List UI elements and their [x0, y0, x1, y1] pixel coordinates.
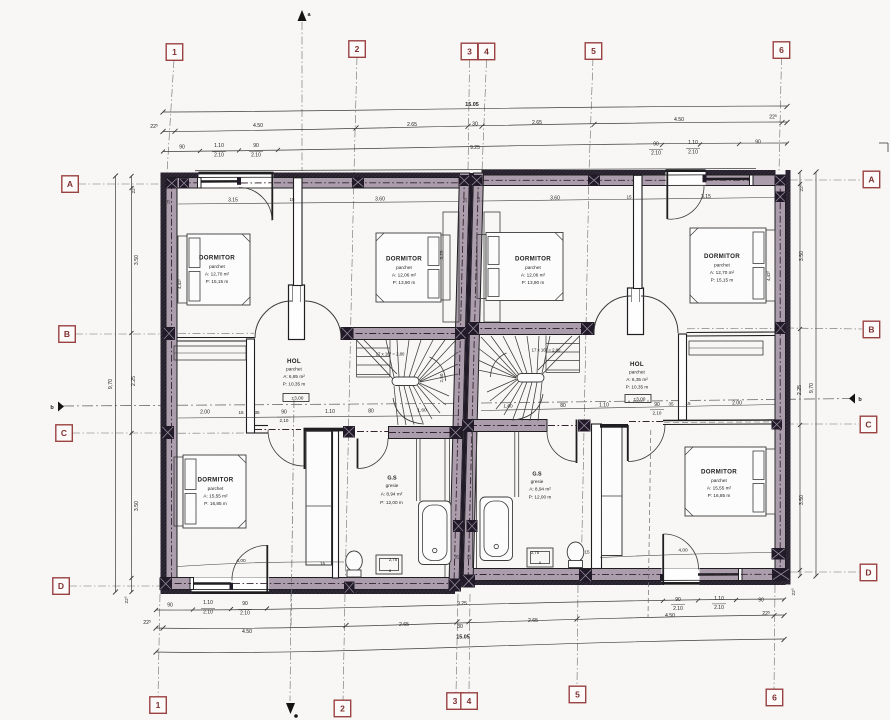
svg-text:25: 25 — [476, 197, 481, 202]
svg-text:8: 8 — [389, 569, 391, 573]
svg-text:A: 6,35 m²: A: 6,35 m² — [626, 377, 648, 382]
svg-text:3,25: 3,25 — [439, 250, 444, 259]
svg-text:4,00: 4,00 — [236, 558, 246, 564]
svg-text:35: 35 — [668, 402, 674, 407]
svg-text:parchet: parchet — [711, 478, 727, 483]
svg-text:4,00: 4,00 — [678, 548, 688, 554]
svg-text:A: 12,70 m²: A: 12,70 m² — [205, 271, 230, 276]
svg-text:6: 6 — [779, 45, 784, 55]
svg-text:DORMITOR: DORMITOR — [515, 256, 551, 263]
svg-text:C: C — [865, 420, 871, 430]
svg-text:3: 3 — [467, 47, 472, 57]
svg-text:15: 15 — [685, 401, 691, 406]
svg-text:90: 90 — [675, 597, 681, 603]
svg-text:parchet: parchet — [286, 367, 302, 372]
svg-text:2.10: 2.10 — [688, 150, 698, 156]
svg-text:gresie: gresie — [531, 479, 544, 484]
svg-text:25: 25 — [455, 554, 460, 559]
svg-text:80: 80 — [560, 403, 566, 409]
svg-text:2,10: 2,10 — [280, 418, 289, 423]
svg-text:2.25: 2.25 — [797, 385, 803, 395]
svg-text:2,75: 2,75 — [389, 557, 398, 562]
svg-text:P: 16,85 m: P: 16,85 m — [708, 493, 731, 498]
svg-text:2.10: 2.10 — [240, 611, 250, 617]
svg-text:parchet: parchet — [714, 262, 730, 267]
svg-text:17 x 165 = 2,80: 17 x 165 = 2,80 — [376, 351, 405, 356]
svg-text:15.05: 15.05 — [465, 102, 479, 108]
svg-text:4.50: 4.50 — [253, 123, 263, 129]
svg-text:2.65: 2.65 — [532, 120, 542, 126]
svg-text:4: 4 — [467, 696, 472, 706]
svg-text:DORMITOR: DORMITOR — [199, 255, 235, 262]
svg-text:P: 10,35 m: P: 10,35 m — [626, 385, 649, 390]
svg-text:1.10: 1.10 — [714, 596, 724, 602]
svg-text:4.50: 4.50 — [665, 613, 675, 619]
svg-text:1.10: 1.10 — [203, 600, 213, 606]
svg-text:C: C — [61, 428, 67, 438]
svg-text:2.10: 2.10 — [714, 605, 724, 611]
svg-text:G.S: G.S — [532, 472, 542, 478]
svg-text:A: 8,94 m²: A: 8,94 m² — [529, 487, 551, 492]
svg-text:2,10: 2,10 — [653, 411, 662, 416]
svg-text:9.25: 9.25 — [457, 601, 467, 607]
svg-text:3.60: 3.60 — [375, 197, 385, 203]
svg-text:P: 13,90 m: P: 13,90 m — [522, 280, 545, 285]
svg-text:90: 90 — [653, 142, 659, 148]
svg-text:15: 15 — [626, 195, 632, 200]
svg-text:HOL: HOL — [630, 361, 644, 368]
svg-text:parchet: parchet — [396, 265, 412, 270]
svg-text:2.25: 2.25 — [131, 376, 137, 386]
svg-text:3.60: 3.60 — [550, 196, 560, 202]
svg-text:P: 15,15 m: P: 15,15 m — [206, 279, 229, 284]
svg-text:3.50: 3.50 — [134, 501, 140, 511]
svg-text:D: D — [865, 568, 871, 578]
svg-text:1: 1 — [156, 700, 161, 710]
svg-text:30: 30 — [457, 624, 463, 630]
svg-text:90: 90 — [179, 145, 185, 151]
svg-text:17 x 165 = 2,80: 17 x 165 = 2,80 — [532, 347, 561, 352]
svg-text:2.10: 2.10 — [651, 151, 661, 157]
svg-text:P: 13,90 m: P: 13,90 m — [393, 280, 416, 285]
svg-text:HOL: HOL — [287, 358, 301, 365]
svg-text:15: 15 — [238, 410, 244, 415]
svg-text:15: 15 — [584, 550, 590, 555]
svg-text:90: 90 — [755, 140, 761, 146]
svg-text:B: B — [868, 325, 874, 335]
svg-text:2.10: 2.10 — [203, 610, 213, 616]
svg-text:2.10: 2.10 — [251, 153, 261, 159]
svg-text:gresie: gresie — [386, 483, 399, 488]
svg-text:3.50: 3.50 — [799, 495, 805, 505]
svg-text:G.S: G.S — [387, 476, 397, 482]
svg-text:P: 16,85 m: P: 16,85 m — [204, 501, 227, 506]
svg-text:A: A — [67, 179, 73, 189]
svg-text:parchet: parchet — [629, 370, 645, 375]
svg-text:P: 12,00 m: P: 12,00 m — [380, 500, 403, 505]
svg-text:A: A — [868, 175, 874, 185]
svg-text:parchet: parchet — [209, 264, 225, 269]
svg-text:D: D — [58, 581, 64, 591]
svg-text:4: 4 — [484, 47, 489, 57]
svg-text:8: 8 — [539, 561, 541, 565]
svg-text:25: 25 — [463, 197, 468, 202]
svg-text:5: 5 — [575, 690, 580, 700]
svg-text:DORMITOR: DORMITOR — [198, 477, 234, 484]
svg-text:2.10: 2.10 — [214, 153, 224, 159]
svg-text:B: B — [64, 329, 70, 339]
svg-text:2,75: 2,75 — [531, 550, 540, 555]
svg-text:1,60: 1,60 — [503, 404, 513, 410]
svg-text:DORMITOR: DORMITOR — [701, 469, 737, 476]
svg-text:P: 15,15 m: P: 15,15 m — [711, 278, 734, 283]
svg-text:1: 1 — [172, 47, 177, 57]
svg-text:35: 35 — [254, 410, 260, 415]
svg-text:1,60: 1,60 — [417, 408, 427, 414]
svg-text:P: 12,00 m: P: 12,00 m — [529, 495, 552, 500]
svg-text:DORMITOR: DORMITOR — [704, 253, 740, 260]
svg-text:5: 5 — [591, 46, 596, 56]
svg-text:3.50: 3.50 — [799, 251, 805, 261]
svg-text:15: 15 — [167, 200, 171, 204]
svg-text:2.65: 2.65 — [528, 618, 538, 624]
svg-text:1.10: 1.10 — [688, 140, 698, 146]
svg-text:parchet: parchet — [525, 265, 541, 270]
svg-text:A: 12,06 m²: A: 12,06 m² — [392, 272, 417, 277]
svg-text:DORMITOR: DORMITOR — [386, 256, 422, 263]
svg-text:1.10: 1.10 — [214, 143, 224, 149]
svg-text:parchet: parchet — [208, 486, 224, 491]
svg-text:2.65: 2.65 — [407, 122, 417, 128]
svg-text:2.00: 2.00 — [732, 401, 742, 407]
svg-text:90: 90 — [253, 143, 259, 149]
svg-text:4.50: 4.50 — [242, 629, 252, 635]
svg-text:15: 15 — [320, 561, 326, 566]
svg-text:1.10: 1.10 — [325, 409, 335, 415]
svg-text:15: 15 — [289, 197, 295, 202]
svg-text:2.10: 2.10 — [673, 606, 683, 612]
svg-text:A: 6,85 m²: A: 6,85 m² — [283, 374, 305, 379]
svg-text:90: 90 — [242, 601, 248, 607]
svg-text:A: 12,70 m²: A: 12,70 m² — [710, 270, 735, 275]
svg-text:90: 90 — [281, 410, 287, 416]
svg-text:9,70: 9,70 — [108, 379, 114, 389]
svg-text:2.00: 2.00 — [200, 410, 210, 416]
svg-text:±3,00: ±3,00 — [634, 397, 646, 403]
svg-text:3: 3 — [453, 696, 458, 706]
svg-text:80: 80 — [368, 409, 374, 415]
svg-text:9.25: 9.25 — [470, 145, 480, 151]
svg-text:2: 2 — [340, 704, 345, 714]
svg-text:90: 90 — [758, 598, 764, 604]
svg-text:P: 10,35 m: P: 10,35 m — [283, 382, 306, 387]
svg-text:1.10: 1.10 — [599, 403, 609, 409]
svg-text:25: 25 — [467, 554, 472, 559]
svg-text:A: 15,55 m²: A: 15,55 m² — [203, 493, 228, 498]
svg-text:3.50: 3.50 — [134, 255, 140, 265]
svg-text:9,70: 9,70 — [809, 383, 815, 393]
svg-text:90: 90 — [167, 603, 173, 609]
svg-text:2.65: 2.65 — [399, 622, 409, 628]
svg-text:30: 30 — [472, 122, 478, 128]
svg-text:2,50: 2,50 — [439, 373, 444, 382]
svg-text:3.15: 3.15 — [701, 194, 711, 200]
svg-text:2: 2 — [355, 44, 360, 54]
svg-text:A: 8,94 m²: A: 8,94 m² — [381, 492, 403, 497]
svg-text:A: 15,55 m²: A: 15,55 m² — [707, 485, 732, 490]
svg-text:90: 90 — [654, 402, 660, 408]
svg-text:3.15: 3.15 — [228, 198, 238, 204]
svg-text:4.50: 4.50 — [674, 117, 684, 123]
svg-text:6: 6 — [772, 693, 777, 703]
svg-text:±3,00: ±3,00 — [292, 396, 304, 402]
svg-text:A: 12,06 m²: A: 12,06 m² — [521, 272, 546, 277]
svg-text:15.05: 15.05 — [456, 635, 470, 641]
